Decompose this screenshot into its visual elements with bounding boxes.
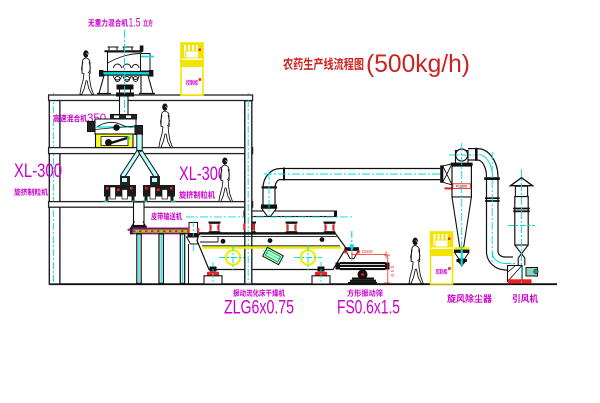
svg-text:1500: 1500 (362, 249, 373, 255)
svg-text:XL-300: XL-300 (179, 164, 226, 185)
svg-text:(500kg/h): (500kg/h) (366, 50, 470, 78)
svg-text:XL-300: XL-300 (14, 161, 62, 182)
svg-text:ZLG6x0.75: ZLG6x0.75 (224, 298, 294, 319)
svg-text:340: 340 (390, 266, 395, 277)
svg-text:1.5: 1.5 (129, 16, 141, 30)
svg-text:FS0.6x1.5: FS0.6x1.5 (337, 298, 400, 319)
